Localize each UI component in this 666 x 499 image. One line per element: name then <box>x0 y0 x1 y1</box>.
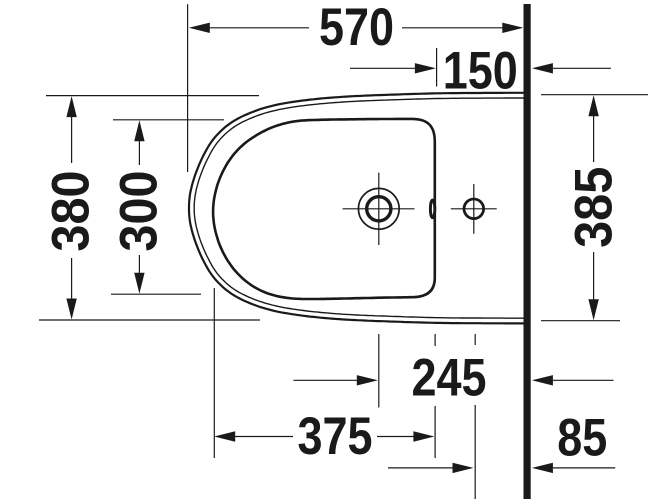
svg-text:375: 375 <box>297 408 372 466</box>
svg-text:245: 245 <box>411 349 486 407</box>
svg-text:85: 85 <box>557 409 607 467</box>
svg-text:385: 385 <box>563 167 622 248</box>
svg-text:150: 150 <box>443 42 518 100</box>
svg-text:570: 570 <box>319 0 394 57</box>
svg-text:300: 300 <box>108 170 167 251</box>
svg-text:380: 380 <box>41 170 100 251</box>
